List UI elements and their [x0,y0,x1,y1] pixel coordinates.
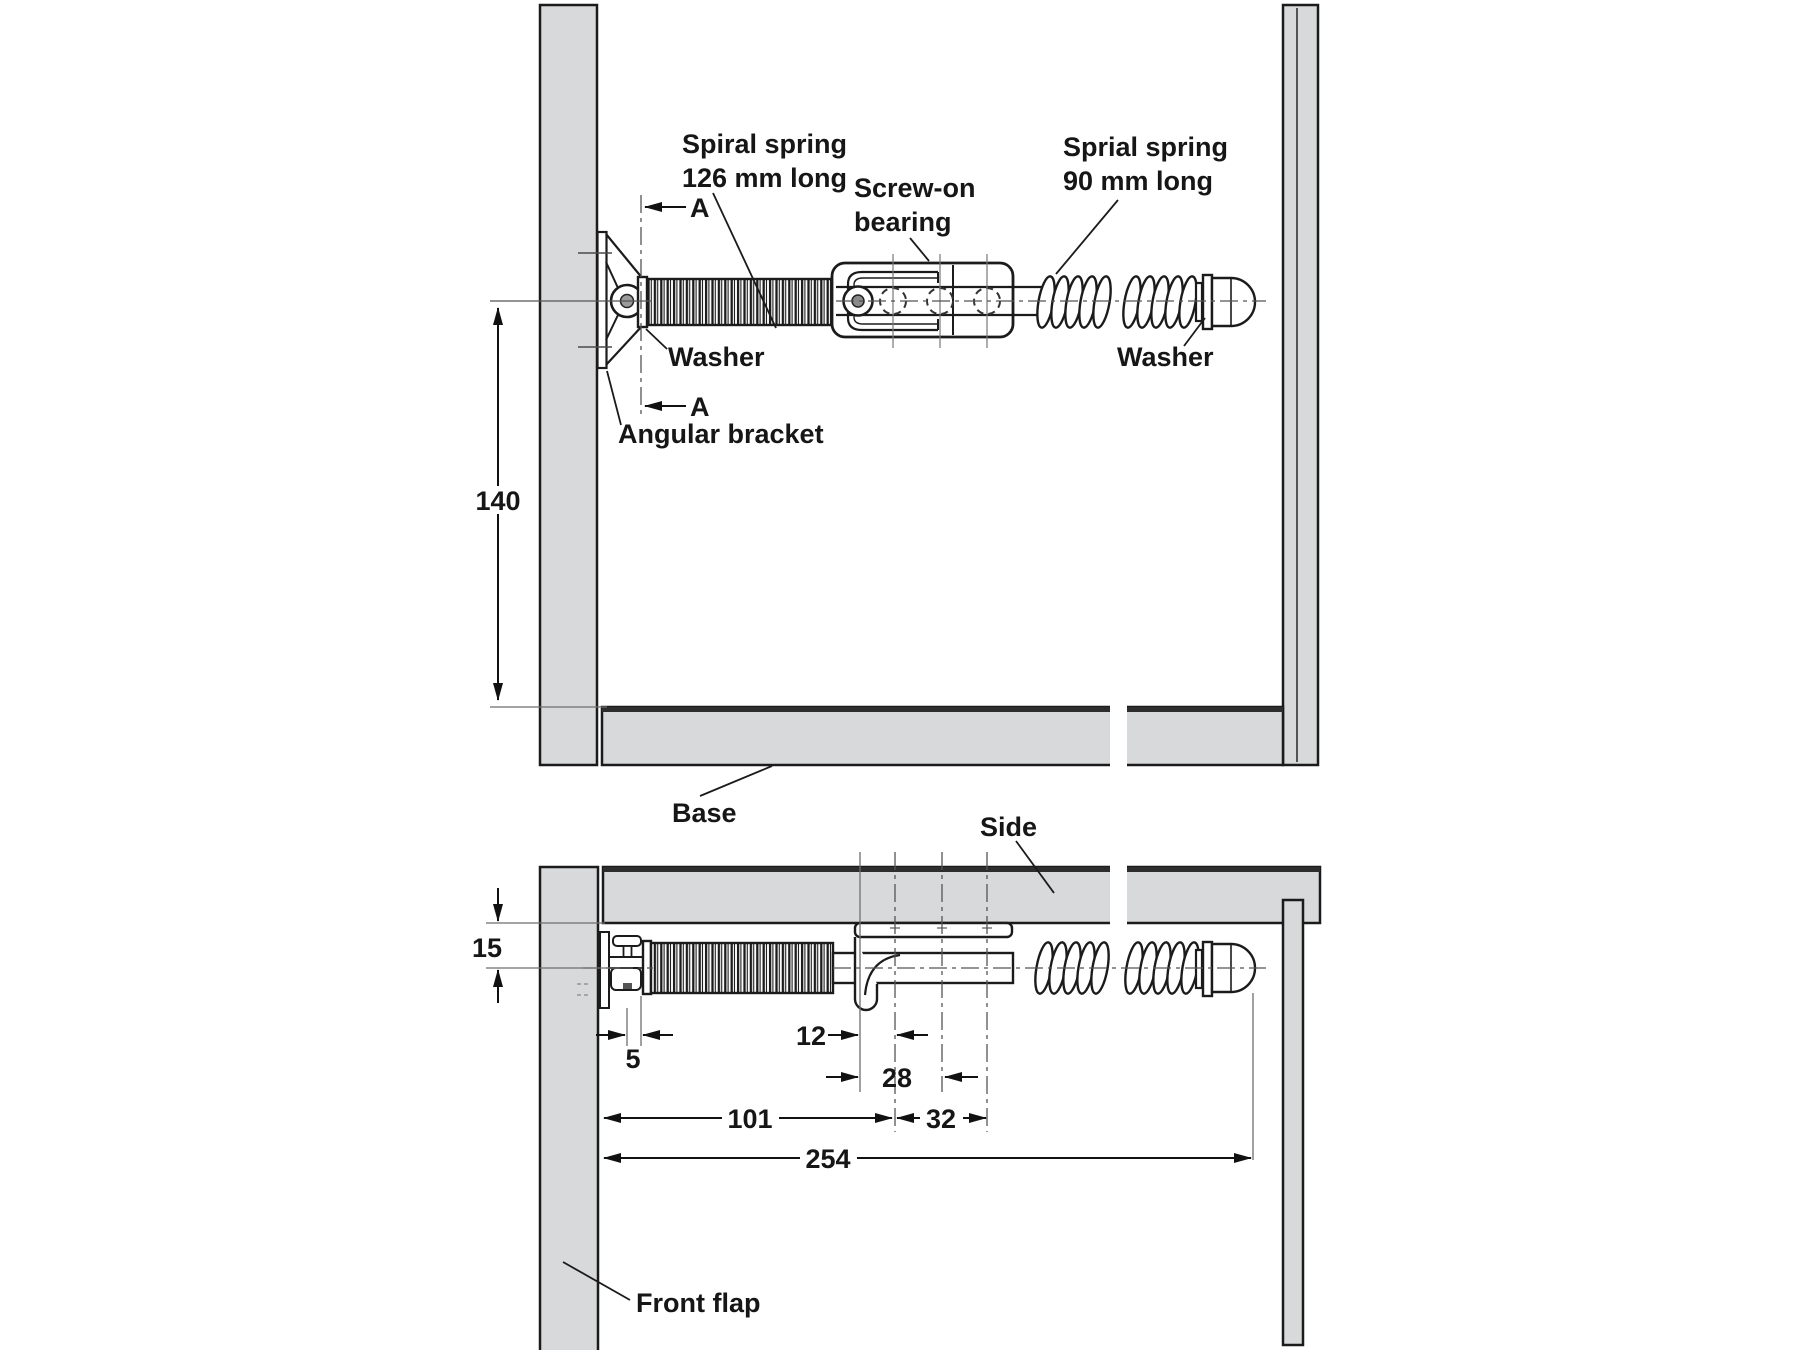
spiral-spring-126-plan [648,279,834,325]
dim-28-value: 28 [882,1063,912,1093]
top-plan-view: 140 A A Spiral spring 126 mm long Screw-… [475,5,1318,828]
dim-140-value: 140 [475,486,520,516]
dimension-32: 32 [897,1104,986,1134]
section-marker-a-bottom: A [645,392,710,422]
spiral-spring-126-elevation [651,943,833,993]
fitting-installation-diagram: 140 A A Spiral spring 126 mm long Screw-… [0,0,1800,1350]
label-sprial-spring-line1: Sprial spring [1063,132,1228,162]
right-side-panel-plan [1283,5,1318,765]
side-elevation-view: 15 5 12 28 101 32 [472,812,1320,1350]
dimension-101: 101 [604,1104,892,1134]
label-angular-bracket: Angular bracket [618,419,824,449]
label-side: Side [980,812,1037,842]
dimension-5: 5 [596,1035,673,1074]
label-spiral-spring-line1: Spiral spring [682,129,847,159]
spring-end-cap-plan [1212,278,1255,326]
leader-angular-bracket [607,371,621,425]
leader-screw-on-bearing [910,238,929,261]
base-panel-plan [602,701,1283,771]
rear-panel-elevation [1283,900,1303,1345]
label-screw-on-line2: bearing [854,207,952,237]
label-front-flap: Front flap [636,1288,760,1318]
leader-washer-left [646,329,667,349]
leader-base [700,766,772,796]
dim-101-value: 101 [727,1104,772,1134]
dim-5-value: 5 [625,1044,640,1074]
front-flap-panel-plan [540,5,597,765]
side-panel-break-gap [1110,861,1127,929]
dim-12-value: 12 [796,1021,826,1051]
label-spiral-spring-line2: 126 mm long [682,163,847,193]
dimension-12: 12 [796,1021,928,1051]
label-screw-on-line1: Screw-on [854,173,976,203]
dim-15-value: 15 [472,933,502,963]
section-marker-a-top: A [645,193,710,223]
dimension-254: 254 [604,1144,1251,1174]
washer-right-plan [1196,275,1212,329]
side-panel-elevation [603,867,1320,923]
spiral-spring-90-plan-left [1034,275,1114,329]
dim-32-value: 32 [926,1104,956,1134]
label-washer-left: Washer [668,342,765,372]
base-break-gap [1110,701,1127,771]
label-washer-right: Washer [1117,342,1214,372]
diagram-canvas: 140 A A Spiral spring 126 mm long Screw-… [0,0,1800,1350]
label-sprial-spring-line2: 90 mm long [1063,166,1213,196]
section-a-bottom-label: A [690,392,710,422]
spiral-spring-90-plan-right [1120,275,1200,329]
washer-left-plan [638,277,647,327]
leader-sprial-spring-90 [1056,200,1118,274]
dim-254-value: 254 [805,1144,850,1174]
dimension-28: 28 [826,1063,978,1093]
label-base: Base [672,798,737,828]
bearing-flange [855,923,1012,937]
section-a-top-label: A [690,193,710,223]
washer-right-elevation [1196,942,1212,996]
